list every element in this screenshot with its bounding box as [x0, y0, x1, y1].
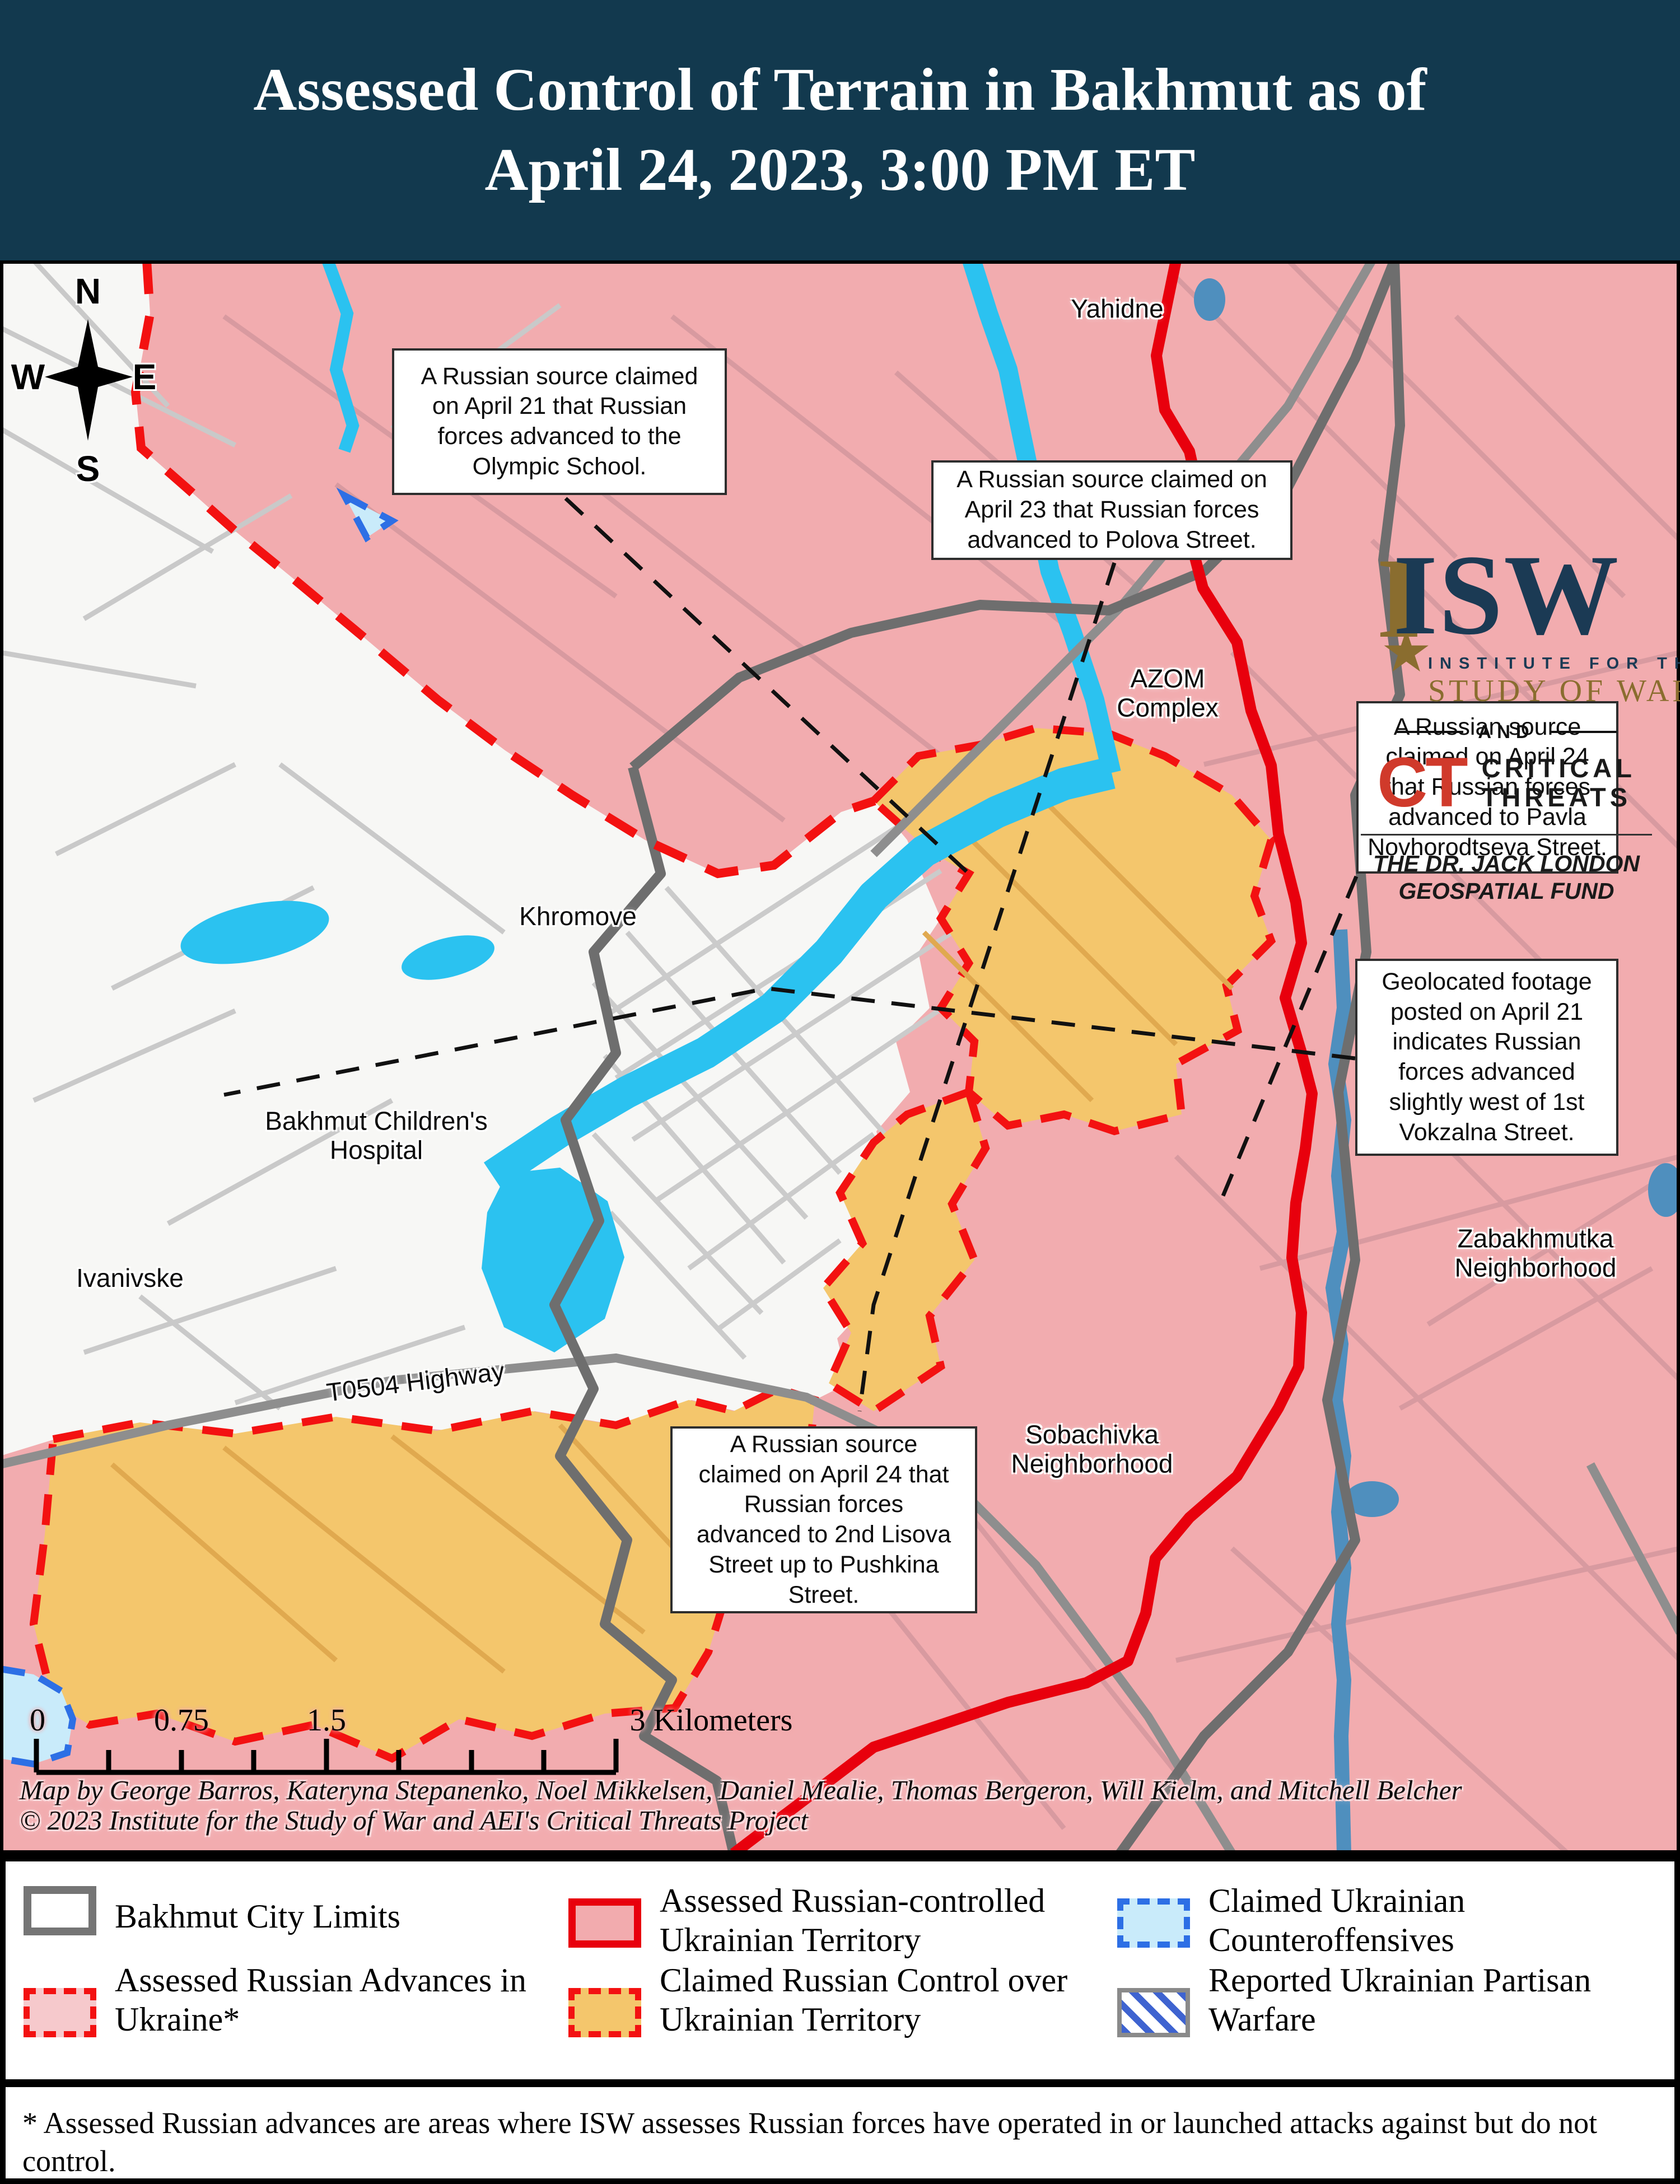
place-label-khromove: Khromove: [519, 902, 637, 931]
legend-swatch-claimed-russian: [568, 1988, 641, 2037]
legend-label-claimed-russian: Claimed Russian Control over Ukrainian T…: [660, 1961, 1067, 2039]
page-title-line1: Assessed Control of Terrain in Bakhmut a…: [253, 50, 1426, 130]
critical-threats-label: CRITICAL THREATS: [1482, 754, 1636, 813]
ct-monogram: CT: [1377, 752, 1466, 815]
isw-bakhmut-map-page: Assessed Control of Terrain in Bakhmut a…: [0, 0, 1680, 2184]
legend-label-counteroffensives: Claimed Ukrainian Counteroffensives: [1208, 1882, 1465, 1959]
title-bar: Assessed Control of Terrain in Bakhmut a…: [0, 0, 1680, 260]
callout-vokzalna-street: Geolocated footage posted on April 21 in…: [1355, 959, 1618, 1156]
place-label-childrens-hospital: Bakhmut Children's Hospital: [265, 1107, 487, 1164]
divider-line: [1550, 731, 1617, 733]
isw-ct-logo: IISW ★ INSTITUTE FOR THE STUDY OF WAR AN…: [1361, 538, 1652, 905]
scale-label-15: 1.5: [307, 1702, 346, 1738]
legend-swatch-russian-advances: [24, 1988, 96, 2037]
place-label-zabakhmutka: Zabakhmutka Neighborhood: [1454, 1224, 1616, 1282]
legend-swatch-counteroffensives: [1117, 1898, 1190, 1948]
isw-wordmark: IISW ★: [1361, 538, 1652, 652]
scale-label-075: 0.75: [154, 1702, 209, 1738]
callout-olympic-school: A Russian source claimed on April 21 tha…: [392, 348, 727, 495]
place-label-azom-complex: AZOM Complex: [1117, 664, 1219, 722]
compass-north-label: N: [75, 270, 101, 312]
page-title-line2: April 24, 2023, 3:00 PM ET: [485, 130, 1196, 211]
isw-letters: ISW: [1393, 531, 1620, 659]
legend-swatch-partisan-warfare: [1117, 1988, 1190, 2037]
logo-and-label: AND: [1478, 721, 1535, 743]
legend-label-russian-advances: Assessed Russian Advances in Ukraine*: [115, 1961, 526, 2039]
divider-line: [1396, 731, 1463, 733]
map-canvas: N E S W Yahidne AZOM Complex Khromove Ba…: [0, 260, 1680, 1854]
compass-south-label: S: [76, 448, 100, 489]
scale-label-0: 0: [30, 1702, 45, 1738]
place-label-sobachivka: Sobachivka Neighborhood: [1011, 1420, 1173, 1478]
legend-swatch-russian-controlled: [568, 1898, 641, 1948]
geospatial-fund-label: THE DR. JACK LONDON GEOSPATIAL FUND: [1361, 834, 1652, 905]
map-credits-line2: © 2023 Institute for the Study of War an…: [20, 1804, 808, 1836]
legend-label-city-limits: Bakhmut City Limits: [115, 1897, 400, 1936]
map-credits-line1: Map by George Barros, Kateryna Stepanenk…: [20, 1774, 1462, 1806]
compass-west-label: W: [11, 356, 45, 398]
footnote-text: * Assessed Russian advances are areas wh…: [22, 2104, 1641, 2180]
callout-polova-street: A Russian source claimed on April 23 tha…: [931, 460, 1292, 560]
compass-east-label: E: [133, 356, 157, 398]
scale-label-3km: 3 Kilometers: [630, 1702, 793, 1738]
logo-and-divider: AND: [1361, 721, 1652, 743]
callout-lisova-pushkina: A Russian source claimed on April 24 tha…: [670, 1426, 977, 1613]
place-label-yahidne: Yahidne: [1071, 295, 1163, 324]
critical-threats-logo: CT CRITICAL THREATS: [1361, 752, 1652, 815]
legend-label-russian-controlled: Assessed Russian-controlled Ukrainian Te…: [660, 1882, 1045, 1959]
legend-swatch-city-limits: [24, 1886, 96, 1935]
place-label-ivanivske: Ivanivske: [76, 1264, 184, 1293]
legend-label-partisan-warfare: Reported Ukrainian Partisan Warfare: [1208, 1961, 1591, 2039]
